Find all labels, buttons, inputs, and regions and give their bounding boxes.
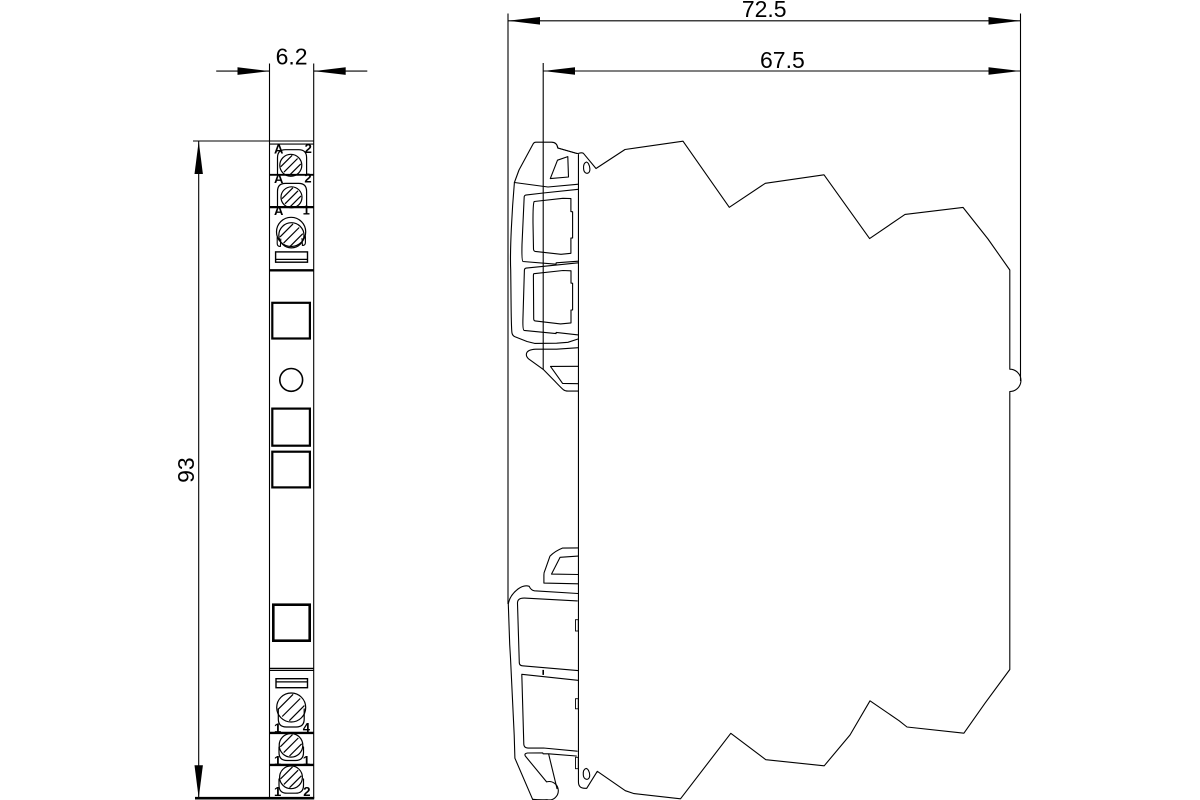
svg-text:93: 93 xyxy=(173,457,199,483)
svg-text:1: 1 xyxy=(274,784,281,799)
svg-text:2: 2 xyxy=(304,171,311,186)
svg-text:67.5: 67.5 xyxy=(760,47,805,73)
svg-text:72.5: 72.5 xyxy=(742,0,787,22)
svg-text:1: 1 xyxy=(303,203,310,218)
svg-text:A: A xyxy=(274,141,284,156)
svg-text:6.2: 6.2 xyxy=(276,44,308,70)
svg-text:A: A xyxy=(274,203,284,218)
svg-text:2: 2 xyxy=(303,784,310,799)
